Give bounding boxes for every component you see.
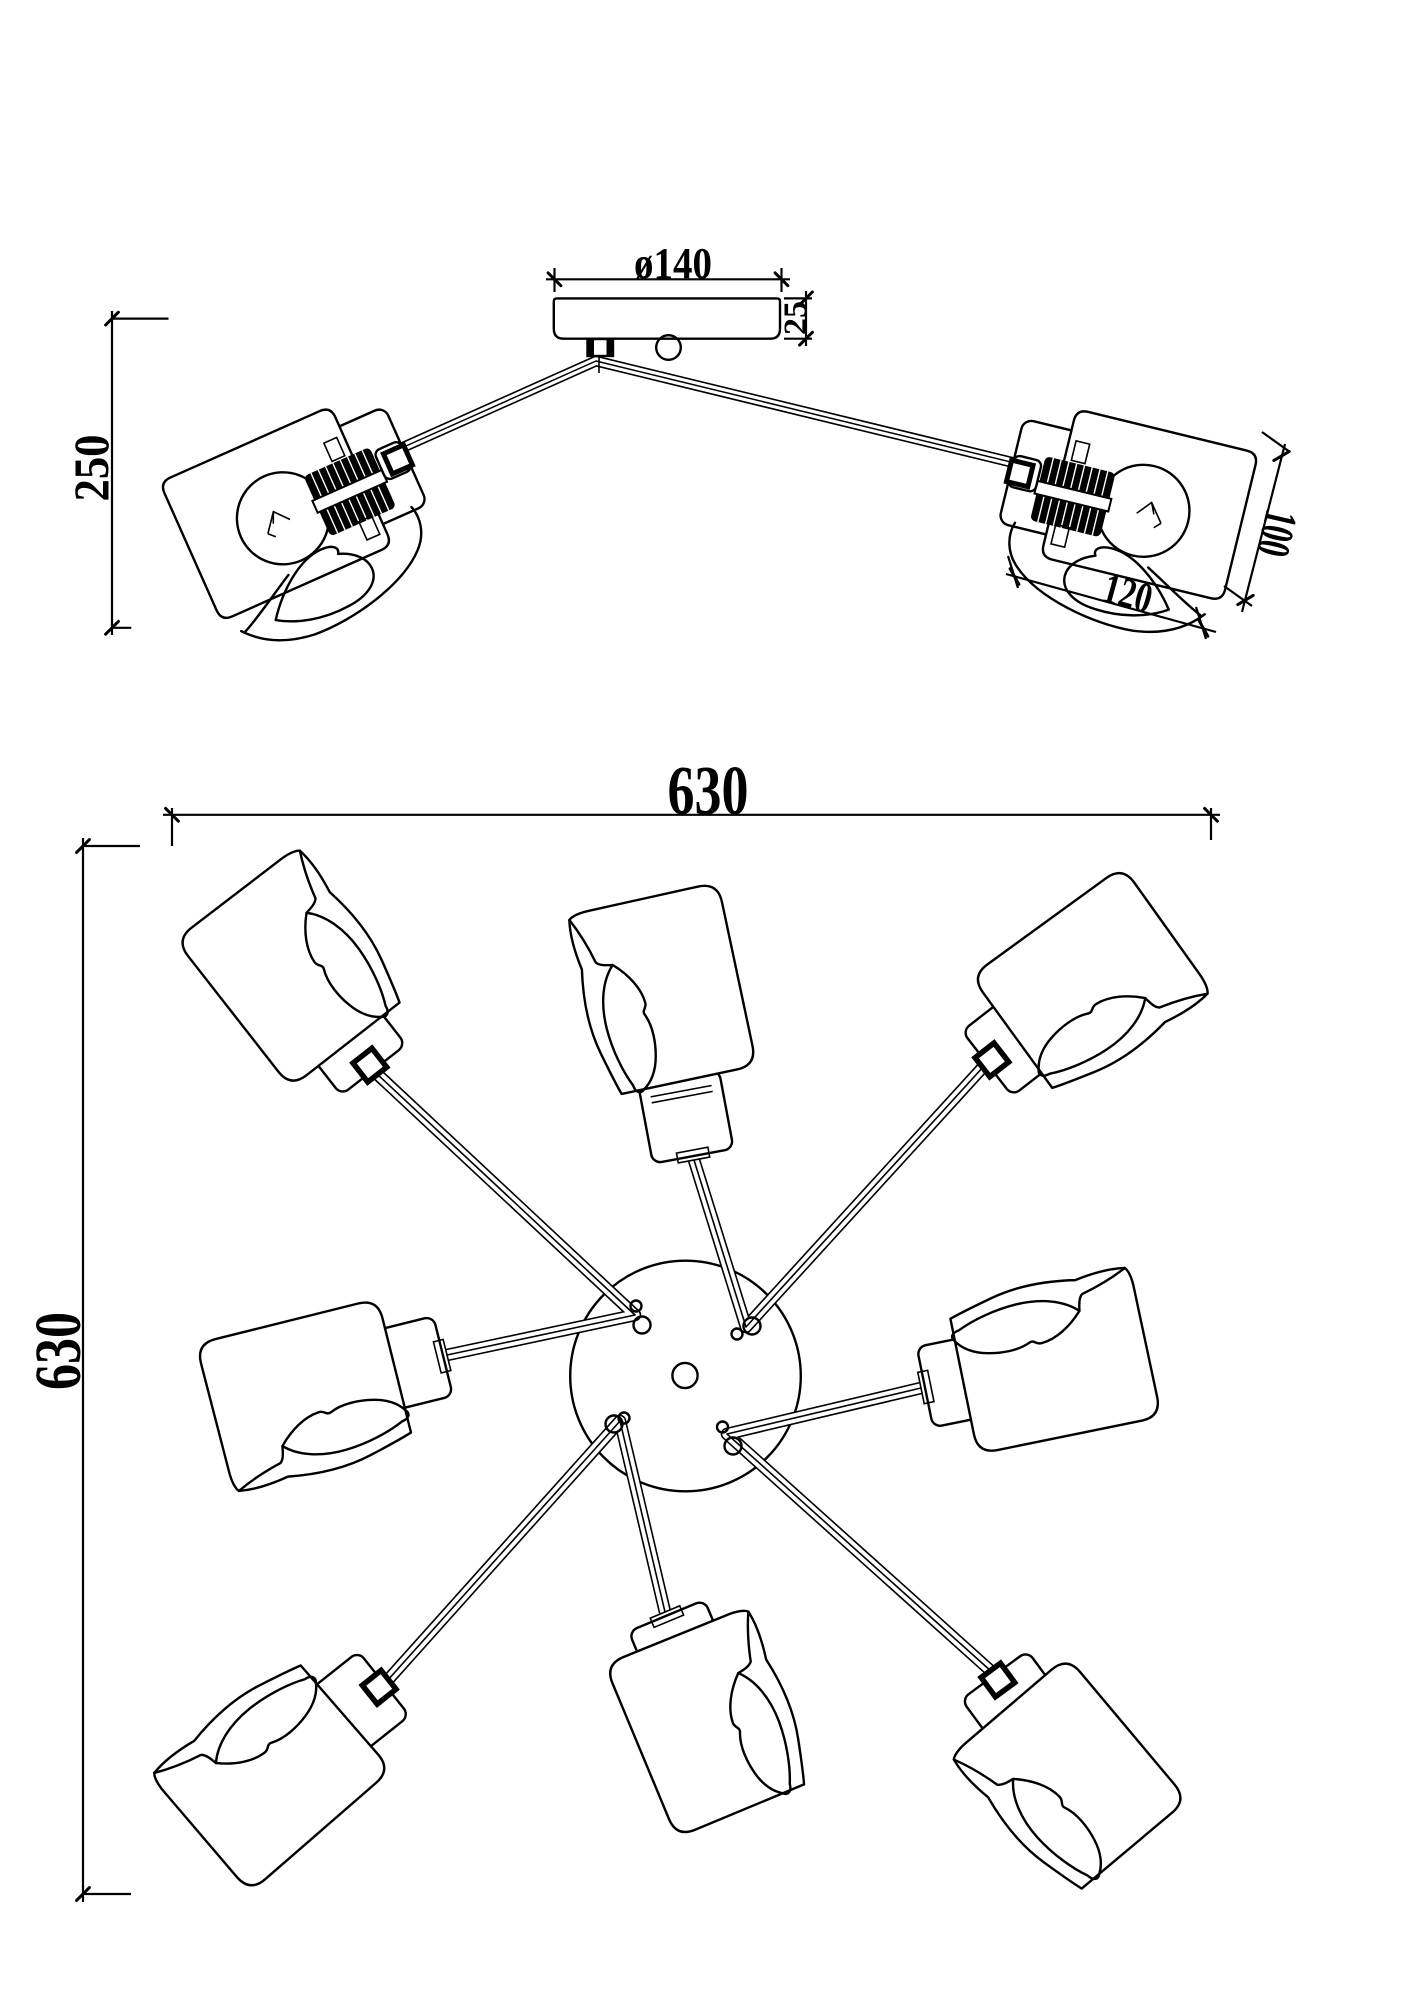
svg-text:630: 630	[22, 1312, 95, 1390]
svg-text:250: 250	[63, 435, 119, 502]
svg-text:25: 25	[778, 301, 814, 335]
svg-text:ø140: ø140	[634, 239, 712, 288]
svg-text:630: 630	[668, 753, 749, 830]
